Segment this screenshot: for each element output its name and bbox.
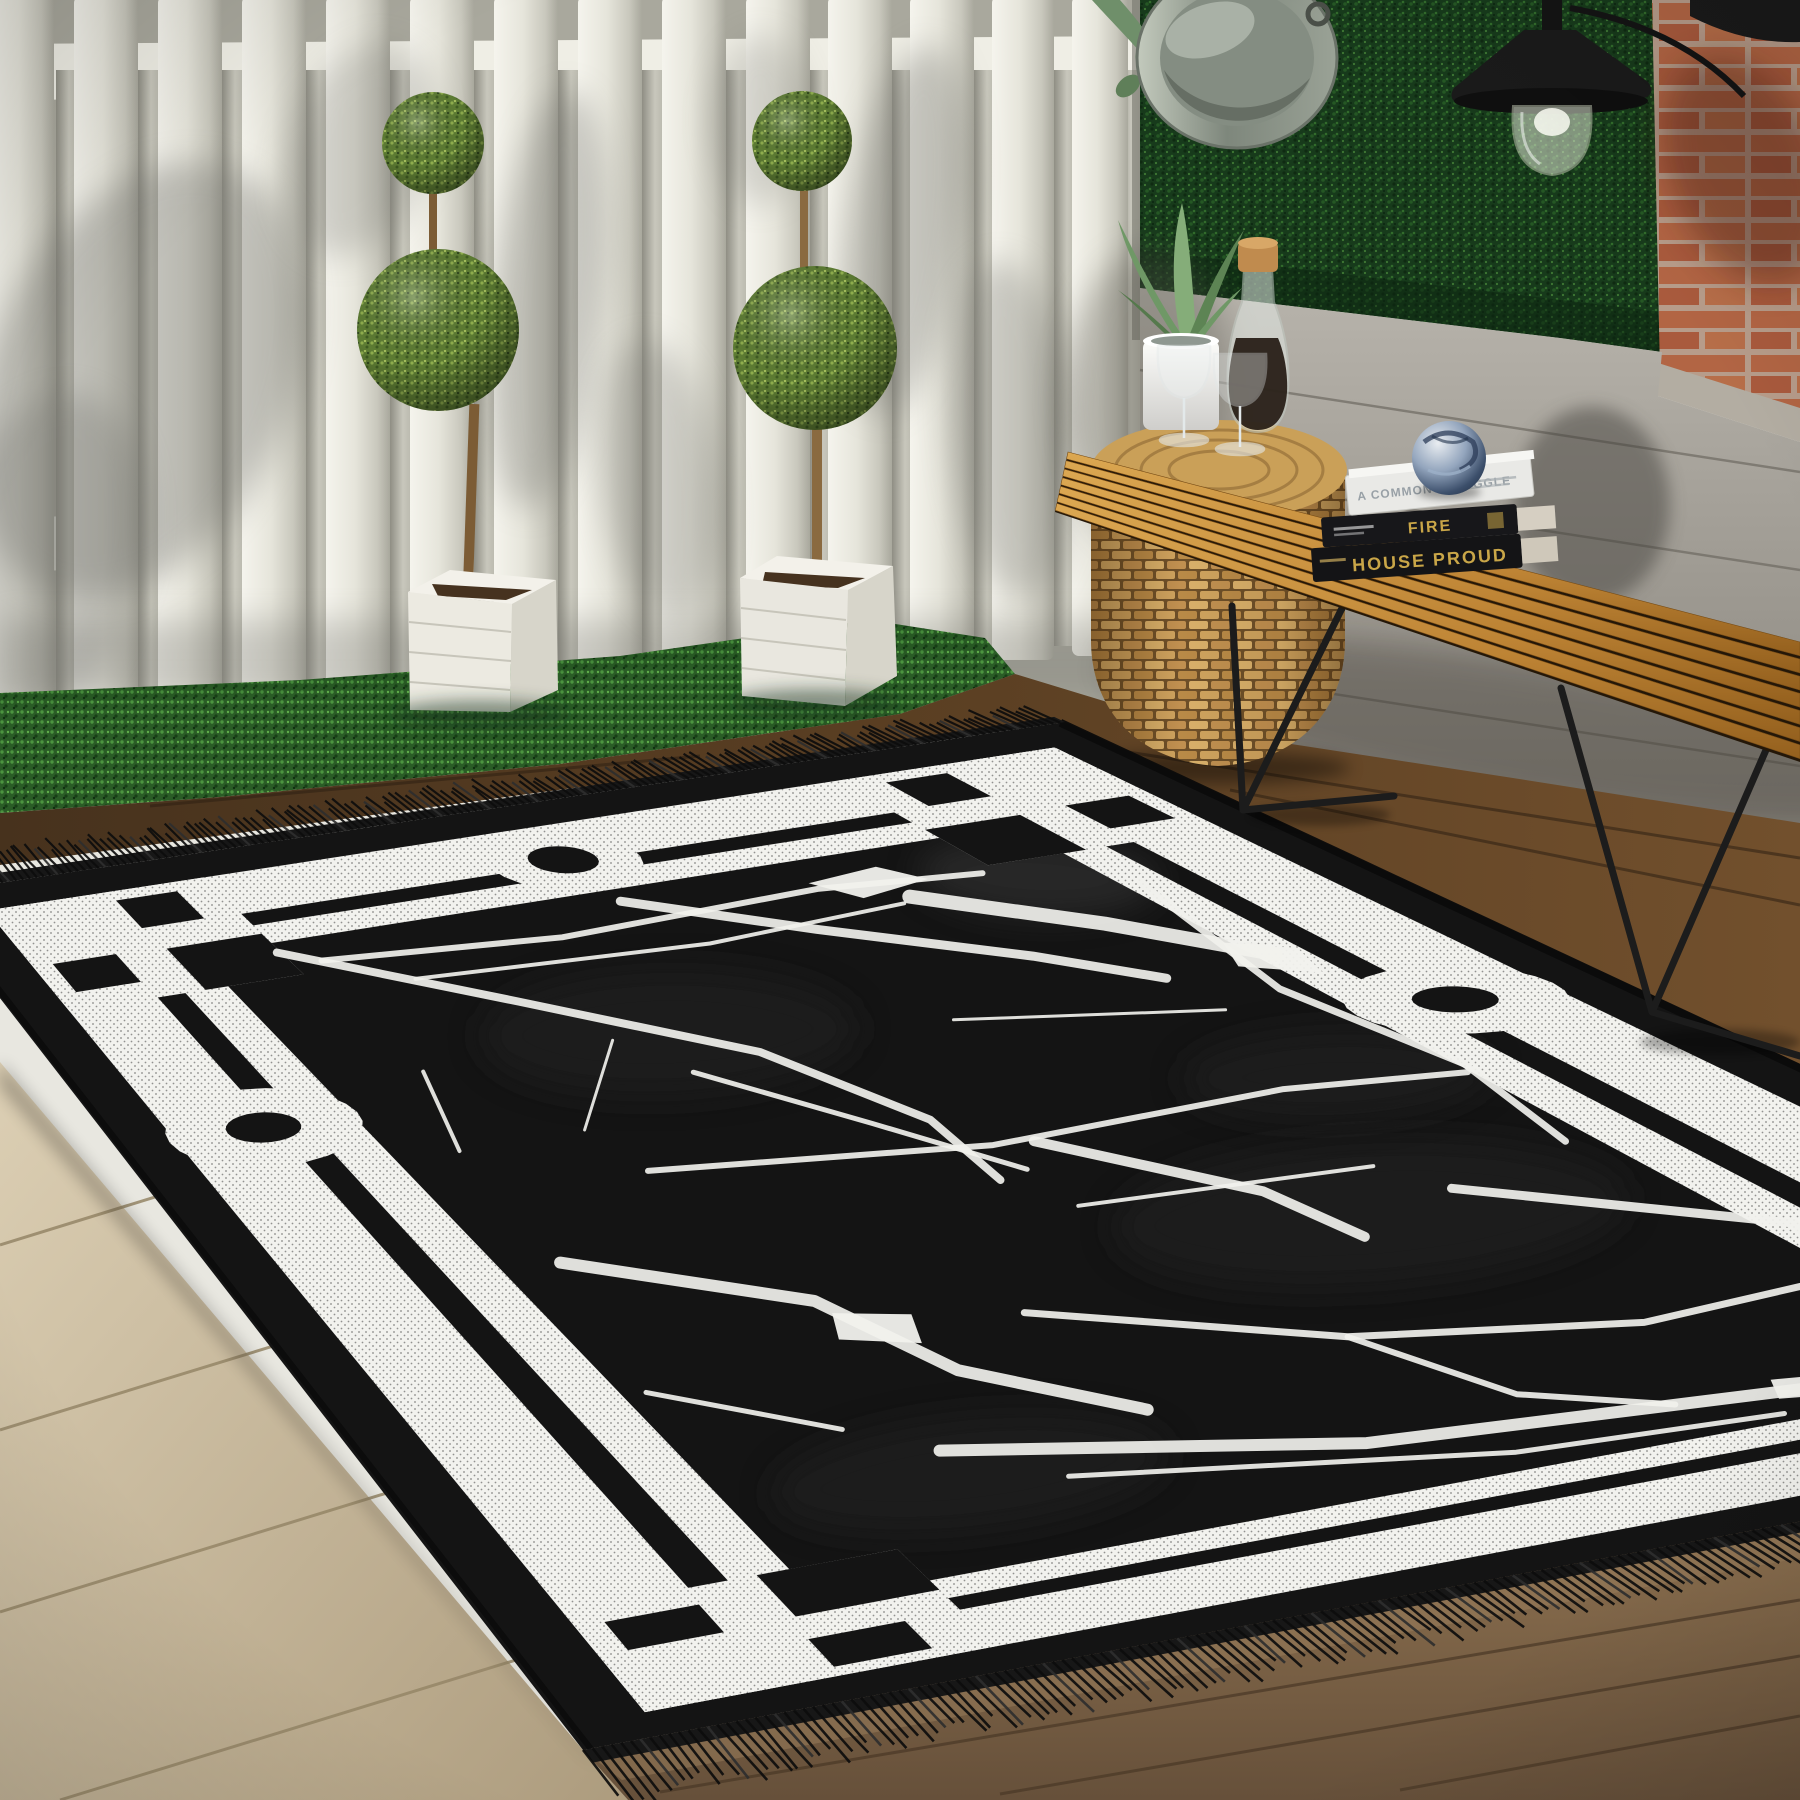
patio-photo-svg: HOUSE PROUD FIRE A COMMON STRUGGLE xyxy=(0,0,1800,1800)
photo-vignette xyxy=(0,0,1800,1800)
patio-scene: HOUSE PROUD FIRE A COMMON STRUGGLE xyxy=(0,0,1800,1800)
